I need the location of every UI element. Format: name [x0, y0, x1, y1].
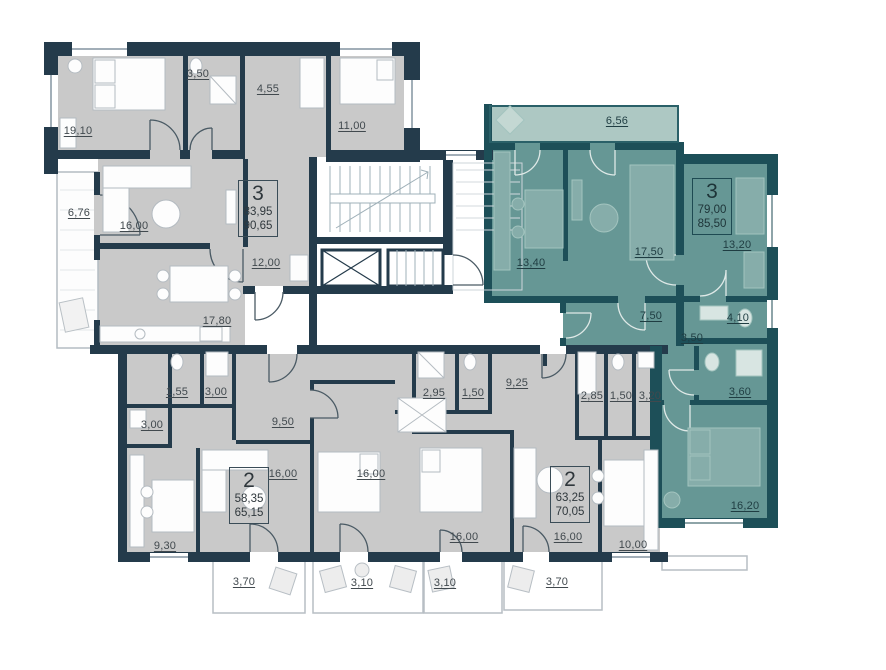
unit-card-top-right[interactable]: 3 79,00 85,50 — [692, 178, 732, 235]
room-area-label: 16,00 — [269, 468, 298, 480]
room-area-label: 3,20 — [639, 390, 661, 402]
room-area-label: 13,40 — [517, 257, 546, 269]
unit-living-area: 63,25 — [551, 491, 589, 505]
unit-total-area: 90,65 — [239, 219, 277, 233]
room-area-label: 16,00 — [120, 220, 149, 232]
room-area-label: 1,50 — [462, 387, 484, 399]
balcony-area-label: 3,10 — [434, 577, 456, 589]
room-area-label: 16,00 — [554, 531, 583, 543]
unit-card-top-left[interactable]: 3 83,95 90,65 — [238, 180, 278, 237]
room-area-label: 7,50 — [640, 310, 662, 322]
unit-total-area: 85,50 — [693, 217, 731, 231]
room-area-label: 6,76 — [68, 207, 90, 219]
floor-plan: 19,10 3,50 4,55 11,00 6,76 16,00 12,00 1… — [0, 0, 886, 670]
room-area-label: 1,55 — [166, 386, 188, 398]
room-area-label: 3,00 — [141, 419, 163, 431]
room-area-label: 4,55 — [257, 83, 279, 95]
unit-rooms-count: 2 — [551, 468, 589, 491]
balcony-area-label: 3,70 — [546, 576, 568, 588]
unit-living-area: 83,95 — [239, 205, 277, 219]
unit-rooms-count: 2 — [230, 469, 268, 492]
room-area-label: 2,95 — [423, 387, 445, 399]
room-area-label: 3,50 — [681, 332, 703, 344]
room-area-label: 6,56 — [606, 115, 628, 127]
room-area-label: 2,85 — [581, 390, 603, 402]
room-area-label: 10,00 — [619, 539, 648, 551]
floorplan-canvas — [0, 0, 886, 670]
room-area-label: 1,50 — [610, 390, 632, 402]
unit-card-bottom-left[interactable]: 2 58,35 65,15 — [229, 467, 269, 524]
room-area-label: 12,00 — [252, 257, 281, 269]
unit-living-area: 79,00 — [693, 203, 731, 217]
unit-rooms-count: 3 — [239, 182, 277, 205]
loggia-6-76 — [57, 172, 98, 348]
room-area-label: 17,80 — [203, 315, 232, 327]
unit-living-area: 58,35 — [230, 492, 268, 506]
common-corridor — [484, 303, 563, 346]
room-area-label: 3,00 — [205, 386, 227, 398]
room-area-label: 3,50 — [187, 68, 209, 80]
room-area-label: 16,20 — [731, 500, 760, 512]
room-area-label: 9,25 — [506, 377, 528, 389]
unit-rooms-count: 3 — [693, 180, 731, 203]
room-area-label: 13,20 — [723, 239, 752, 251]
unit-total-area: 70,05 — [551, 505, 589, 519]
room-area-label: 17,50 — [635, 246, 664, 258]
unit-total-area: 65,15 — [230, 506, 268, 520]
room-area-label: 11,00 — [338, 120, 366, 132]
balcony-area-label: 3,70 — [233, 576, 255, 588]
room-area-label: 9,50 — [272, 416, 294, 428]
room-area-label: 16,00 — [450, 531, 479, 543]
unit-card-bottom-right[interactable]: 2 63,25 70,05 — [550, 466, 590, 523]
room-area-label: 9,30 — [154, 540, 176, 552]
room-area-label: 4,10 — [727, 312, 749, 324]
room-area-label: 19,10 — [64, 125, 93, 137]
balcony-area-label: 3,10 — [351, 577, 373, 589]
room-area-label: 16,00 — [357, 468, 386, 480]
room-area-label: 3,60 — [729, 386, 751, 398]
